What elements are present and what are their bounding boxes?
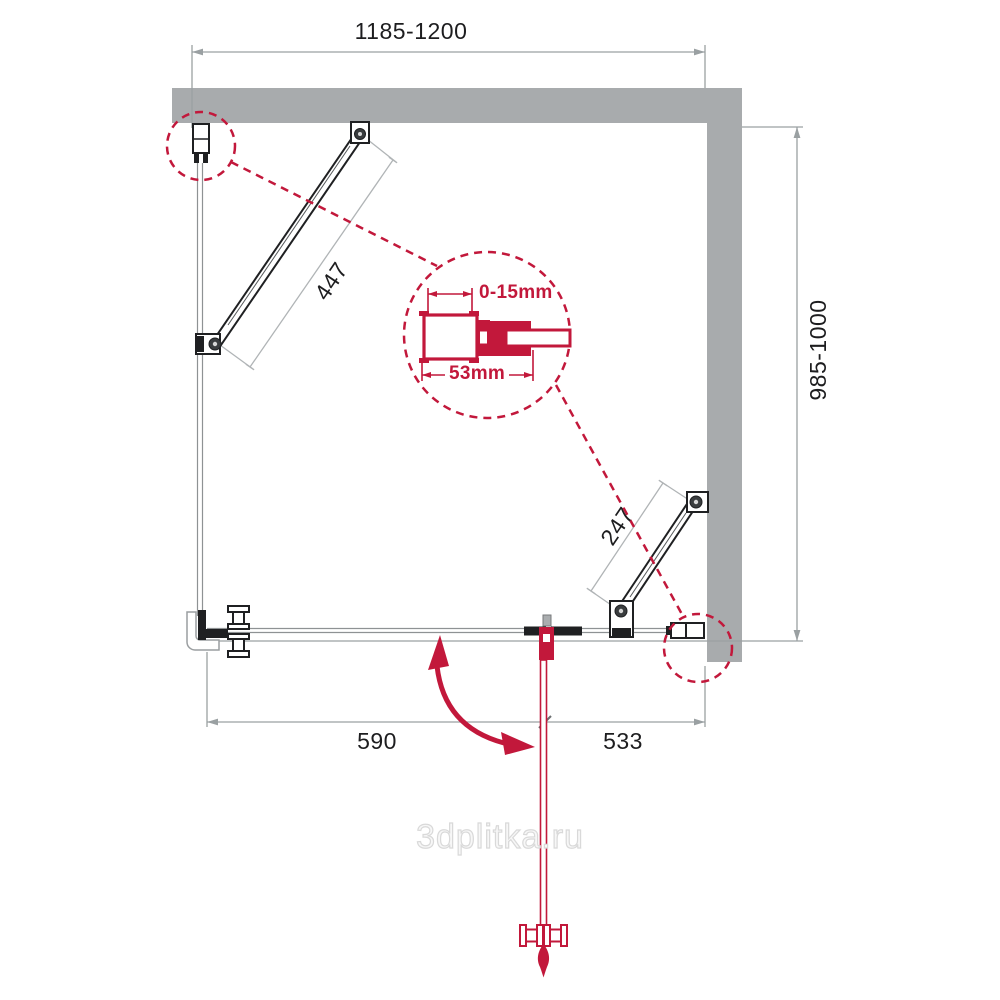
watermark-text: 3dplitka.ru <box>350 818 650 857</box>
wall-profile-bracket-top-left <box>193 124 209 163</box>
door-swing-arc <box>428 635 535 755</box>
door-edge-tip <box>538 944 549 978</box>
detail-dimension-gap <box>428 288 472 313</box>
wall-top <box>172 88 742 123</box>
door-590-dimension-label: 590 <box>337 728 417 754</box>
detail-width-label: 53mm <box>445 364 509 384</box>
corner-profile-bottom-left <box>187 610 228 650</box>
detail-gap-label: 0-15mm <box>479 283 553 303</box>
door-knob-red <box>520 925 567 946</box>
fixed-533-dimension-label: 533 <box>583 728 663 754</box>
door-open-position-red <box>520 627 567 978</box>
wall-right <box>707 123 742 662</box>
glass-panel-left <box>198 163 203 616</box>
door-knob-black <box>228 606 249 657</box>
callout-circles <box>167 112 732 682</box>
technical-drawing-page: 1185-1200 985-1000 447 247 590 533 0-15m… <box>0 0 1000 1000</box>
side-depth-dimension-label: 985-1000 <box>805 250 831 450</box>
top-width-dimension-label: 1185-1200 <box>300 18 522 44</box>
